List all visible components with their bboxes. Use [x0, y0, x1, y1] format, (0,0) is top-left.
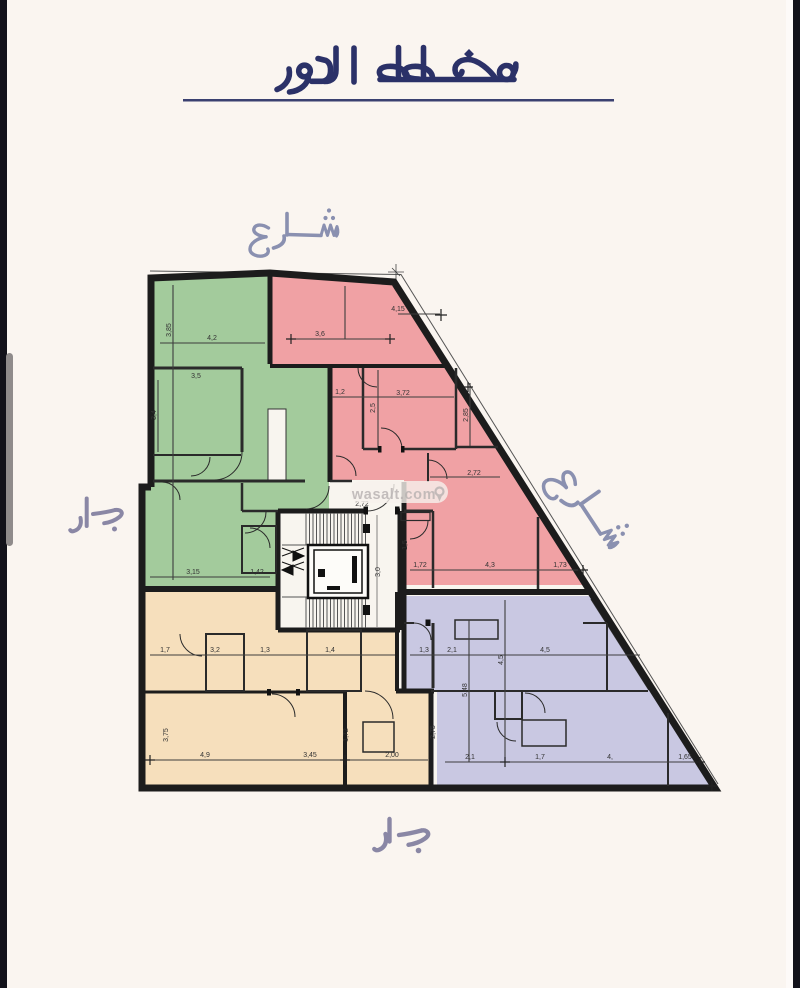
svg-text:5,48: 5,48 [462, 683, 469, 697]
svg-text:1,5: 1,5 [402, 540, 409, 550]
svg-text:1,72: 1,72 [413, 562, 427, 569]
svg-text:1,73: 1,73 [553, 562, 567, 569]
svg-text:3,72: 3,72 [396, 390, 410, 397]
svg-text:1,2: 1,2 [335, 389, 345, 396]
svg-text:4,: 4, [607, 754, 613, 761]
svg-text:1,4: 1,4 [325, 647, 335, 654]
svg-text:2,75: 2,75 [430, 725, 437, 739]
svg-text:1,42: 1,42 [250, 569, 264, 576]
svg-text:3,6: 3,6 [315, 331, 325, 338]
svg-text:4,5: 4,5 [498, 655, 505, 665]
svg-text:1,3: 1,3 [419, 647, 429, 654]
svg-text:3,5: 3,5 [191, 373, 201, 380]
svg-text:2,72: 2,72 [467, 470, 481, 477]
svg-text:1,3: 1,3 [260, 647, 270, 654]
svg-text:1,65: 1,65 [678, 754, 692, 761]
svg-text:2,1: 2,1 [447, 647, 457, 654]
svg-text:2,5: 2,5 [370, 403, 377, 413]
svg-text:4,2: 4,2 [207, 335, 217, 342]
svg-text:3,4: 3,4 [151, 410, 158, 420]
svg-text:1,72: 1,72 [343, 728, 350, 742]
svg-text:1,7: 1,7 [160, 647, 170, 654]
svg-text:4,15: 4,15 [391, 306, 405, 313]
svg-text:3,2: 3,2 [210, 647, 220, 654]
svg-text:2,00: 2,00 [385, 752, 399, 759]
svg-text:4,5: 4,5 [540, 647, 550, 654]
svg-text:3,15: 3,15 [186, 569, 200, 576]
svg-text:4,9: 4,9 [200, 752, 210, 759]
svg-text:3,45: 3,45 [303, 752, 317, 759]
svg-text:4,3: 4,3 [485, 562, 495, 569]
svg-text:1,7: 1,7 [535, 754, 545, 761]
svg-text:2,85: 2,85 [463, 408, 470, 422]
svg-text:3,75: 3,75 [163, 728, 170, 742]
svg-text:2,1: 2,1 [465, 754, 475, 761]
svg-text:wasalt.com: wasalt.com [351, 487, 436, 503]
svg-text:3,0: 3,0 [375, 567, 382, 577]
svg-text:3,85: 3,85 [166, 323, 173, 337]
